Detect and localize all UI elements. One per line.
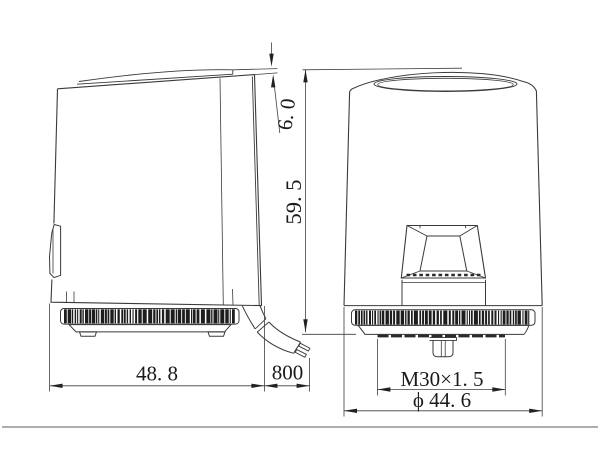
svg-text:ϕ 44. 6: ϕ 44. 6 <box>413 388 471 412</box>
svg-text:800: 800 <box>272 361 304 385</box>
svg-text:6. 0: 6. 0 <box>272 97 300 131</box>
svg-text:59. 5: 59. 5 <box>281 180 306 225</box>
svg-text:48. 8: 48. 8 <box>136 362 178 386</box>
